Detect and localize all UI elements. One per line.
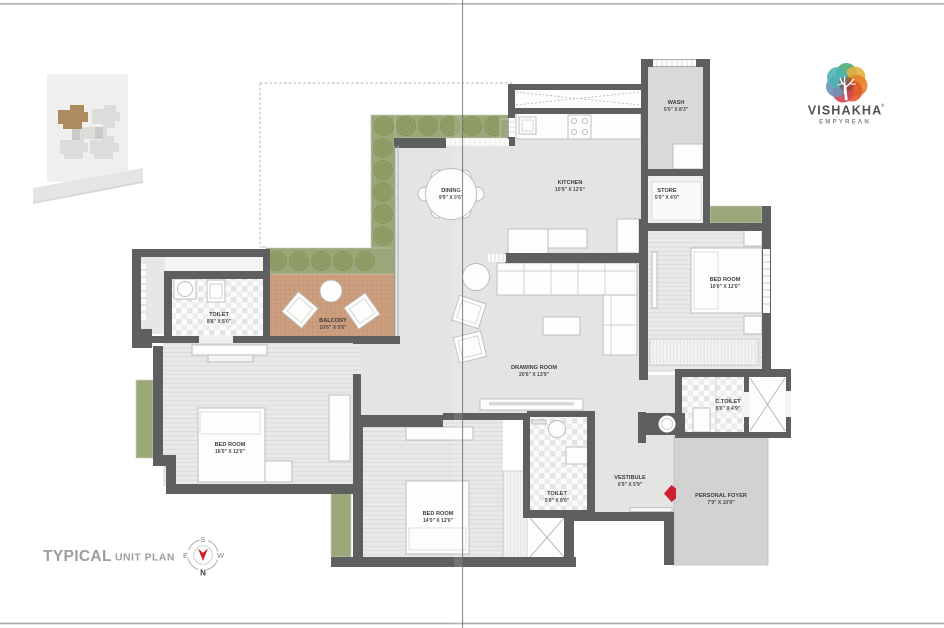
svg-text:20'6" X 13'9": 20'6" X 13'9" bbox=[519, 372, 550, 378]
svg-text:W: W bbox=[217, 551, 225, 560]
svg-text:VISHAKHA: VISHAKHA bbox=[808, 104, 883, 118]
svg-text:N: N bbox=[200, 569, 206, 578]
svg-text:8'6" X 5'0": 8'6" X 5'0" bbox=[207, 319, 232, 325]
svg-text:7'9" X 10'9": 7'9" X 10'9" bbox=[707, 500, 735, 506]
svg-text:10'6" X 5'6": 10'6" X 5'6" bbox=[319, 325, 347, 331]
svg-text:C.TOILET: C.TOILET bbox=[715, 399, 741, 405]
svg-text:®: ® bbox=[881, 102, 885, 108]
svg-text:S: S bbox=[200, 535, 205, 544]
svg-text:VESTIBULE: VESTIBULE bbox=[614, 475, 646, 481]
svg-text:6'9" X 5'9": 6'9" X 5'9" bbox=[618, 482, 643, 488]
svg-text:UNIT PLAN: UNIT PLAN bbox=[115, 553, 175, 564]
svg-text:TOILET: TOILET bbox=[547, 491, 567, 497]
svg-text:PERSONAL FOYER: PERSONAL FOYER bbox=[695, 493, 747, 499]
svg-text:BED ROOM: BED ROOM bbox=[710, 277, 741, 283]
svg-text:BED ROOM: BED ROOM bbox=[423, 511, 454, 517]
svg-text:TOILET: TOILET bbox=[209, 312, 229, 318]
svg-text:DRAWING ROOM: DRAWING ROOM bbox=[511, 365, 557, 371]
svg-text:5'0" X 4'0": 5'0" X 4'0" bbox=[655, 195, 680, 201]
svg-text:14'0" X 12'0": 14'0" X 12'0" bbox=[423, 518, 454, 524]
svg-text:BED ROOM: BED ROOM bbox=[215, 442, 246, 448]
svg-text:5'0" X 4'9": 5'0" X 4'9" bbox=[716, 406, 741, 412]
svg-text:10'0" X 12'0": 10'0" X 12'0" bbox=[710, 284, 741, 290]
svg-text:10'9" X 12'0": 10'9" X 12'0" bbox=[555, 187, 586, 193]
svg-text:KITCHEN: KITCHEN bbox=[558, 180, 583, 186]
svg-text:E: E bbox=[183, 551, 188, 560]
svg-text:STORE: STORE bbox=[657, 188, 676, 194]
svg-text:WASH: WASH bbox=[668, 100, 685, 106]
svg-text:5'0" X 8'0": 5'0" X 8'0" bbox=[545, 498, 570, 504]
svg-text:5'0" X 8'3": 5'0" X 8'3" bbox=[664, 107, 689, 113]
svg-text:EMPYREAN: EMPYREAN bbox=[819, 119, 871, 126]
svg-text:16'0" X 12'0": 16'0" X 12'0" bbox=[215, 449, 246, 455]
svg-text:TYPICAL: TYPICAL bbox=[43, 548, 112, 565]
svg-text:BALCONY: BALCONY bbox=[319, 318, 347, 324]
